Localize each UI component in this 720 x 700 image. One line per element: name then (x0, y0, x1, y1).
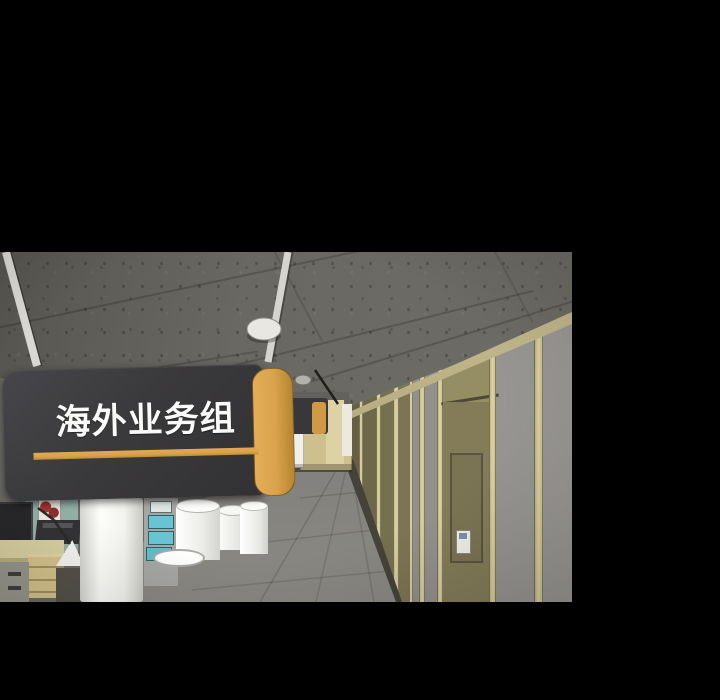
hanging-rod-right (268, 252, 288, 362)
hanging-rod-left (6, 252, 37, 366)
sign-label: 海外业务组 (55, 399, 266, 442)
sign-bracket-rod (315, 370, 338, 404)
hallway-scene: 海外业务组 (0, 252, 572, 602)
comic-panel: 海外业务组 (0, 0, 720, 700)
lamp-arm (54, 520, 70, 544)
ceiling-dome-small (295, 375, 311, 385)
department-sign: 海外业务组 (2, 358, 295, 505)
smoke-detector (247, 318, 281, 340)
lamp-arm (38, 508, 54, 520)
